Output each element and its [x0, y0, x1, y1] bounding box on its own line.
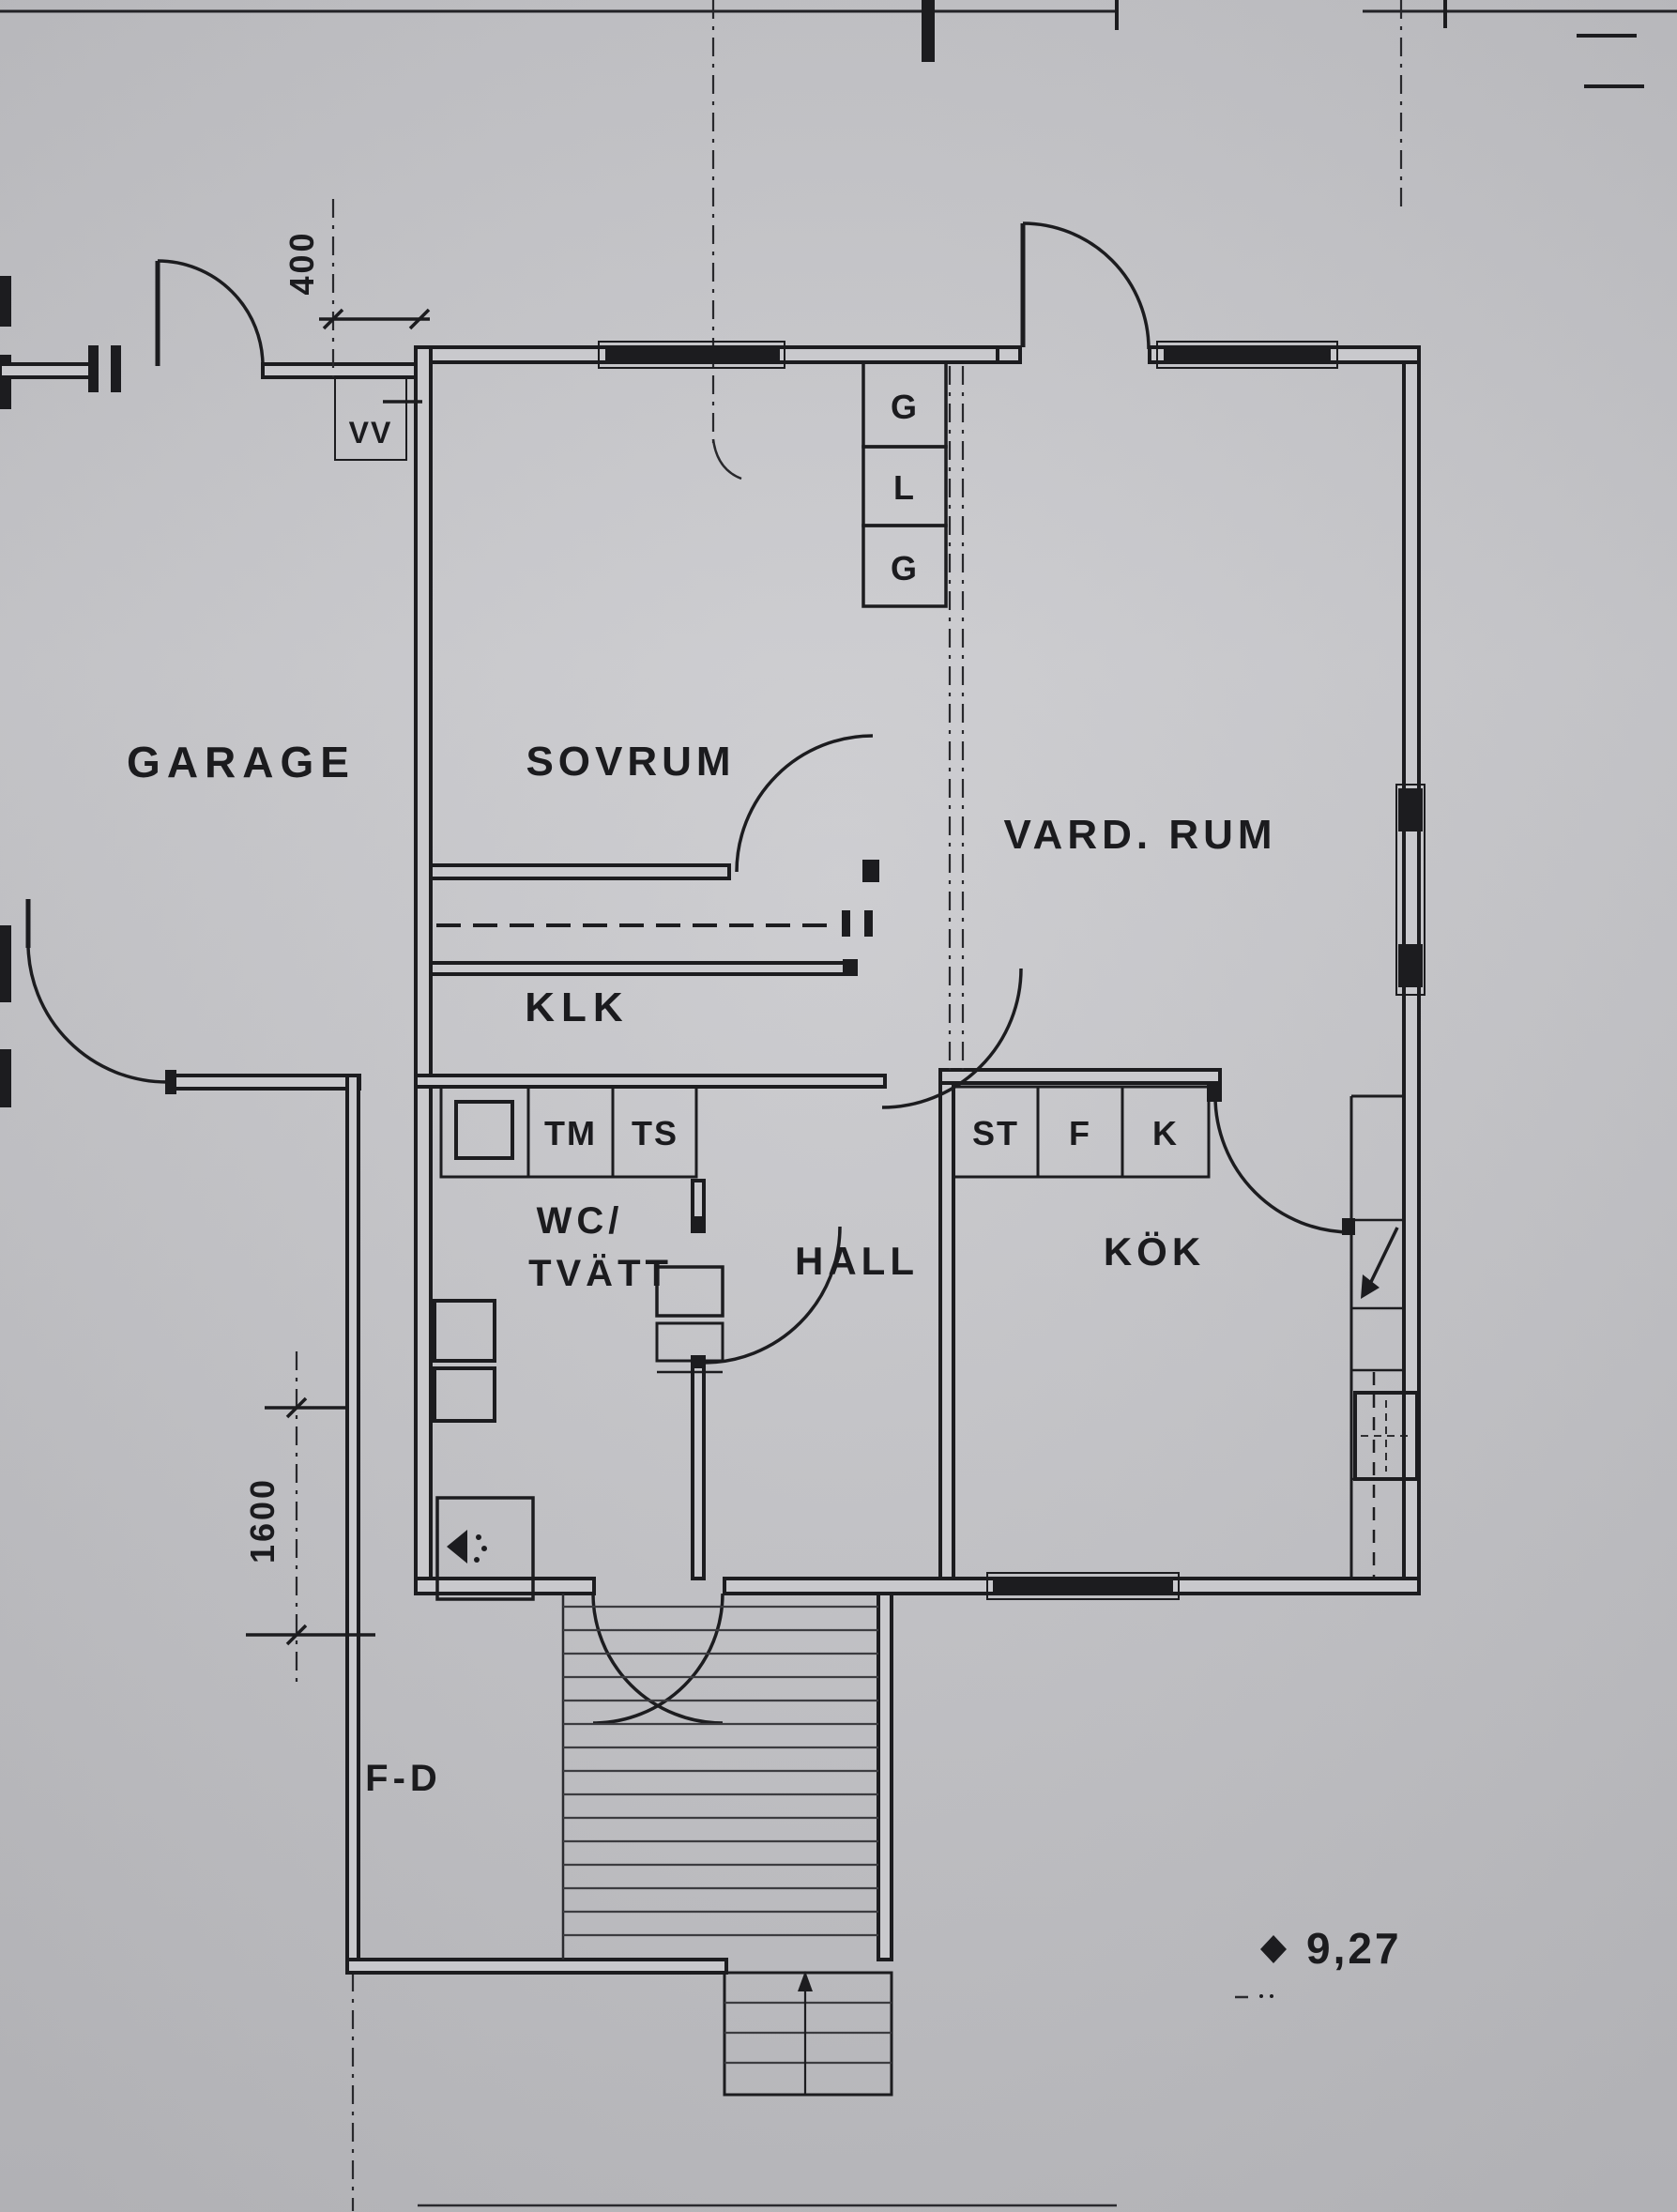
garage-side-door-arc — [28, 943, 167, 1082]
fixture-labels: G L G TM TS ST F K VV — [349, 388, 1179, 1152]
wall-post — [864, 910, 873, 937]
livingroom-window — [1164, 349, 1331, 360]
garage-door-arc — [158, 261, 263, 366]
garage-window-jamb — [88, 345, 99, 392]
kitchen-label: KÖK — [1104, 1229, 1205, 1274]
drying-cabinet-label: TS — [632, 1114, 678, 1152]
reference-hook — [713, 439, 741, 479]
east-window-jamb — [1398, 944, 1423, 987]
linen-label: L — [893, 468, 916, 507]
garage-label: GARAGE — [127, 738, 356, 786]
bedroom-door-arc — [737, 736, 873, 872]
entry-stairs — [563, 1594, 892, 2095]
bedroom-south-wall — [431, 865, 729, 878]
north-wall-stub — [998, 347, 1020, 362]
bedroom-label: SOVRUM — [526, 739, 735, 785]
door-post — [691, 1216, 706, 1229]
annex-east-wall — [878, 1594, 892, 1960]
laundry-north-wall — [416, 1075, 885, 1087]
top-tick-bold — [922, 0, 935, 62]
freezer-label: F — [1069, 1114, 1091, 1152]
drain-dot — [481, 1546, 487, 1551]
livingroom-entry-door-arc — [1023, 223, 1149, 349]
door-hinge-post — [862, 860, 879, 882]
washing-machine-icon — [456, 1102, 512, 1158]
hall-label: HALL — [795, 1239, 919, 1283]
drain-dot — [476, 1534, 481, 1540]
washing-machine-label: TM — [544, 1114, 597, 1152]
left-edge-wall-mark — [0, 1049, 11, 1107]
closet-north-wall — [431, 963, 845, 974]
fridge-label: K — [1152, 1114, 1179, 1152]
south-wall-wc — [416, 1579, 594, 1594]
door-hinge-post — [843, 959, 858, 976]
wardrobe-top-label: G — [891, 388, 919, 426]
kitchen-west-wall — [940, 1083, 953, 1579]
garage-top-wall — [0, 364, 92, 377]
left-edge-wall-mark — [0, 276, 11, 327]
hall-west-wall-lower — [693, 1363, 704, 1579]
cleaning-cabinet-label: ST — [972, 1114, 1019, 1152]
bedroom-window — [605, 349, 780, 360]
garage-bottom-wall — [169, 1075, 359, 1089]
left-edge-wall-mark — [0, 925, 11, 1002]
kitchen-door-arc — [1215, 1096, 1351, 1232]
main-entrance-door-arc-2 — [593, 1594, 723, 1723]
dimension-1600: 1600 — [243, 1477, 282, 1564]
sink-icon — [434, 1301, 495, 1361]
wall-post — [842, 910, 850, 937]
garage-top-wall-2 — [263, 364, 416, 377]
wc-fixtures — [434, 1267, 723, 1599]
wc-label-line2: TVÄTT — [528, 1253, 673, 1294]
drain-dot — [474, 1557, 480, 1563]
elevation-dot — [1259, 1994, 1263, 1998]
entry-label: F-D — [365, 1758, 442, 1799]
closet-label: KLK — [525, 984, 629, 1030]
annex-west-wall — [347, 1075, 358, 1973]
water-heater-label: VV — [349, 416, 393, 450]
elevation-diamond-icon — [1260, 1935, 1287, 1963]
elevation-marker: 9,27 — [1235, 1924, 1402, 1998]
toilet-icon — [434, 1368, 495, 1421]
sink-drain-arrow — [1368, 1228, 1397, 1288]
hall-bench — [657, 1323, 723, 1361]
dimension-400: 400 — [282, 230, 321, 295]
annex-south-wall — [347, 1960, 726, 1973]
sink-drain-arrowhead — [1361, 1274, 1380, 1299]
kitchen-cabinet-wall — [940, 1070, 1220, 1083]
elevation-value: 9,27 — [1306, 1924, 1402, 1973]
reference-lines — [0, 0, 1677, 2211]
elevation-dot — [1270, 1994, 1273, 1998]
livingroom-label: VARD. RUM — [1003, 812, 1276, 858]
floor-plan: 400 1600 9,27 GARAGE SOVRUM VARD. RUM KL… — [0, 0, 1677, 2212]
wardrobe-bottom-label: G — [891, 549, 919, 587]
main-entrance-door-arc-1 — [593, 1594, 723, 1723]
kitchen-window — [993, 1580, 1173, 1592]
wc-label-line1: WC/ — [537, 1200, 624, 1242]
floor-drain-icon — [447, 1530, 467, 1564]
east-window-jamb — [1398, 788, 1423, 831]
garage-structure — [0, 261, 416, 1094]
west-wall — [416, 347, 431, 1592]
garage-window-jamb — [111, 345, 121, 392]
dimensions: 400 1600 — [243, 199, 430, 1689]
